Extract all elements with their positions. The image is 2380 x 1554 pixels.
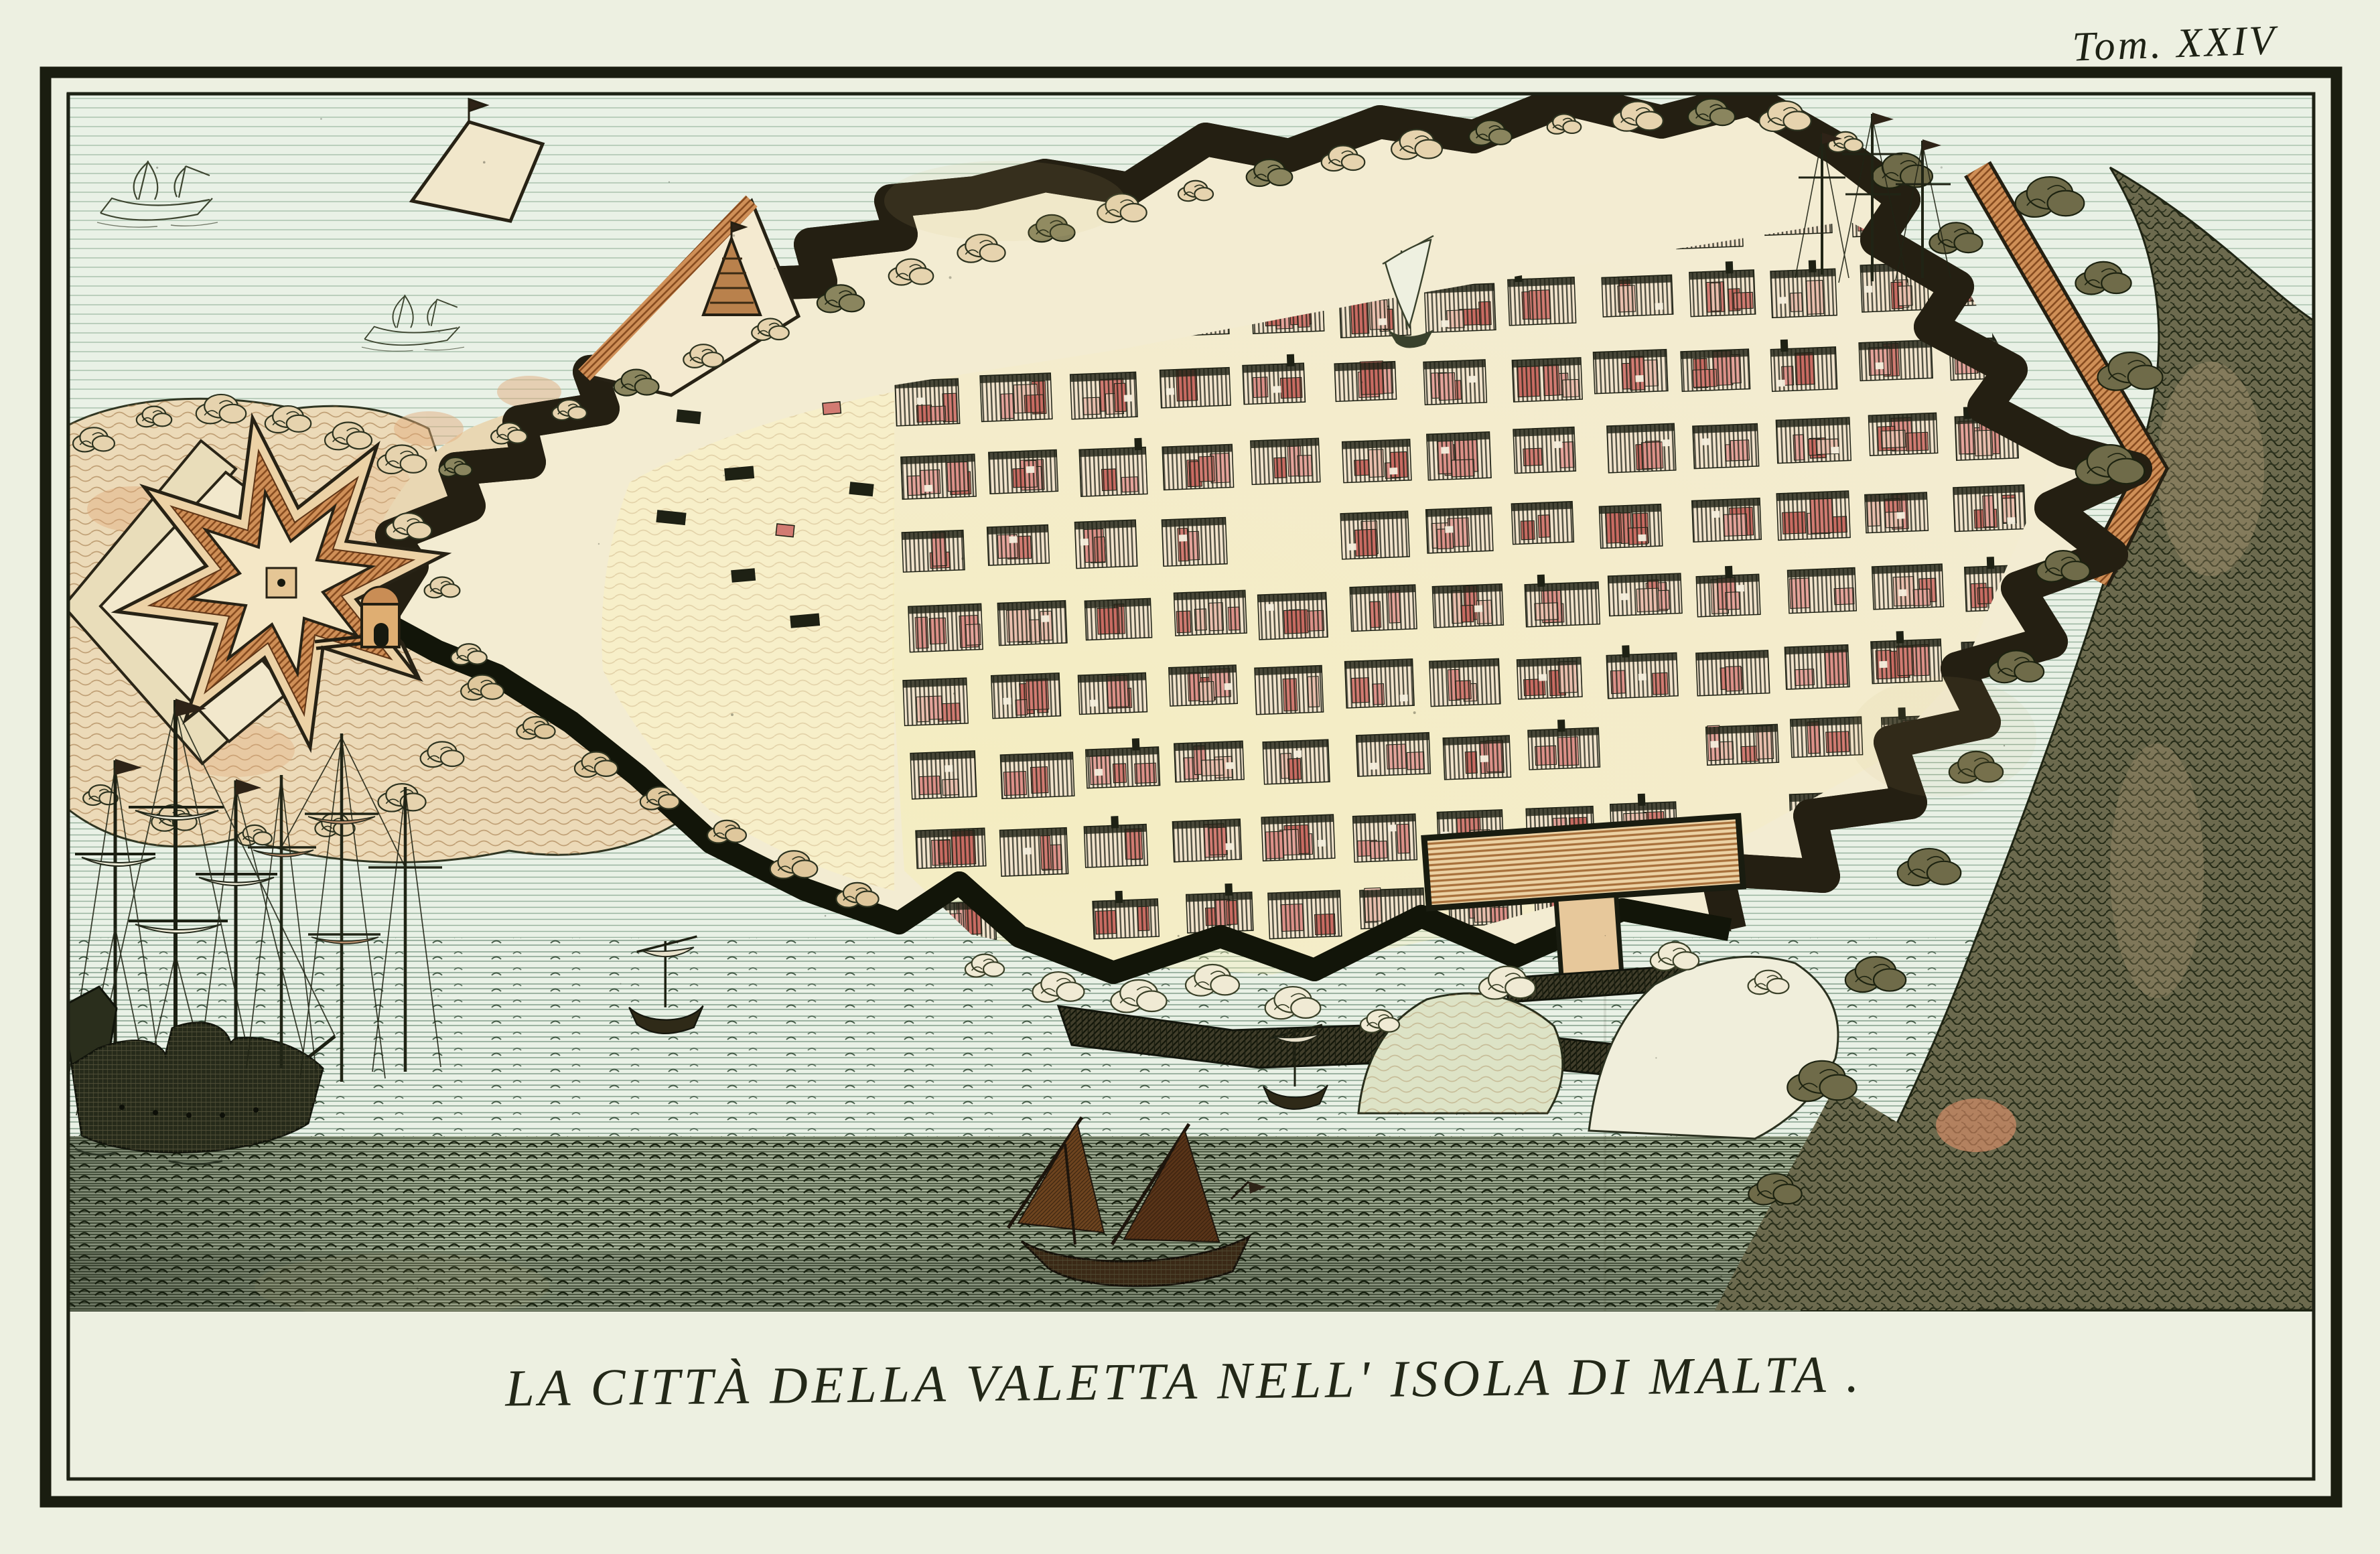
city-block	[1334, 360, 1396, 401]
city-block	[895, 378, 960, 426]
city-block	[1443, 735, 1511, 780]
city-block	[1258, 592, 1328, 640]
city-block	[1174, 741, 1244, 782]
city-block	[1342, 439, 1411, 483]
plate-scene: LA CITTÀ DELLA VALETTA NELL' ISOLA DI MA…	[62, 94, 2315, 1479]
city-block	[1859, 340, 1933, 381]
city-block	[1353, 814, 1417, 862]
city-block	[908, 604, 983, 652]
city-block	[1429, 658, 1500, 706]
city-block	[1593, 350, 1667, 394]
city-block	[1776, 491, 1850, 541]
city-block	[1000, 828, 1068, 877]
city-block	[1426, 507, 1493, 553]
city-block	[1776, 417, 1851, 463]
city-block	[1602, 275, 1673, 317]
city-block	[901, 454, 976, 499]
gate-arch	[374, 623, 389, 647]
city-block	[1427, 432, 1491, 480]
city-block	[1872, 564, 1944, 610]
city-block	[1268, 890, 1342, 938]
city-block	[1350, 585, 1417, 631]
city-block	[1513, 427, 1576, 474]
city-block	[1340, 511, 1409, 559]
small-building	[849, 482, 873, 496]
city-block	[1432, 584, 1503, 628]
city-block	[987, 525, 1050, 566]
city-block	[1512, 358, 1582, 402]
city-block	[1172, 819, 1241, 862]
city-block	[1953, 485, 2026, 532]
city-block	[1693, 424, 1759, 469]
city-block	[1174, 590, 1247, 636]
city-block	[997, 601, 1067, 646]
city-block	[1599, 504, 1662, 549]
small-building	[790, 614, 819, 628]
city-block	[910, 751, 977, 799]
city-block	[1681, 349, 1750, 391]
city-block	[1160, 368, 1231, 408]
city-block	[980, 373, 1052, 421]
small-building	[656, 510, 686, 524]
city-block	[1423, 360, 1486, 405]
engraved-map: LA CITTÀ DELLA VALETTA NELL' ISOLA DI MA…	[0, 0, 2380, 1554]
city-block	[916, 828, 986, 868]
city-block	[1784, 645, 1849, 689]
city-block	[1692, 498, 1762, 542]
city-block	[989, 449, 1058, 494]
city-block	[1607, 423, 1676, 473]
city-block	[1608, 573, 1682, 616]
city-block	[1706, 723, 1779, 766]
city-block	[1424, 283, 1496, 332]
volume-label: Tom. XXIV	[2071, 17, 2279, 70]
city-block	[1868, 413, 1937, 455]
city-block	[1788, 568, 1857, 614]
city-block	[1345, 659, 1415, 708]
city-block	[1517, 657, 1582, 699]
city-block	[1865, 492, 1929, 533]
small-building	[823, 402, 841, 415]
city-block	[902, 531, 965, 573]
city-block	[1070, 372, 1137, 419]
city-block	[1162, 517, 1227, 566]
city-block	[1169, 665, 1237, 706]
city-block	[991, 673, 1061, 719]
city-block	[1251, 438, 1320, 484]
small-building	[776, 524, 794, 537]
city-block	[903, 678, 968, 725]
city-block	[1084, 598, 1151, 640]
city-block	[1074, 520, 1137, 569]
city-block	[1255, 666, 1324, 715]
city-block	[1162, 444, 1233, 490]
engraving-plate: LA CITTÀ DELLA VALETTA NELL' ISOLA DI MA…	[0, 0, 2380, 1554]
small-building	[731, 569, 755, 582]
small-building	[725, 466, 754, 480]
city-block	[1356, 733, 1431, 776]
city-block	[1078, 673, 1147, 714]
city-block	[1263, 739, 1330, 784]
city-block	[1696, 650, 1770, 696]
city-block	[1511, 502, 1573, 545]
city-block	[1261, 815, 1335, 861]
small-building	[677, 410, 701, 423]
city-block	[1000, 752, 1074, 798]
